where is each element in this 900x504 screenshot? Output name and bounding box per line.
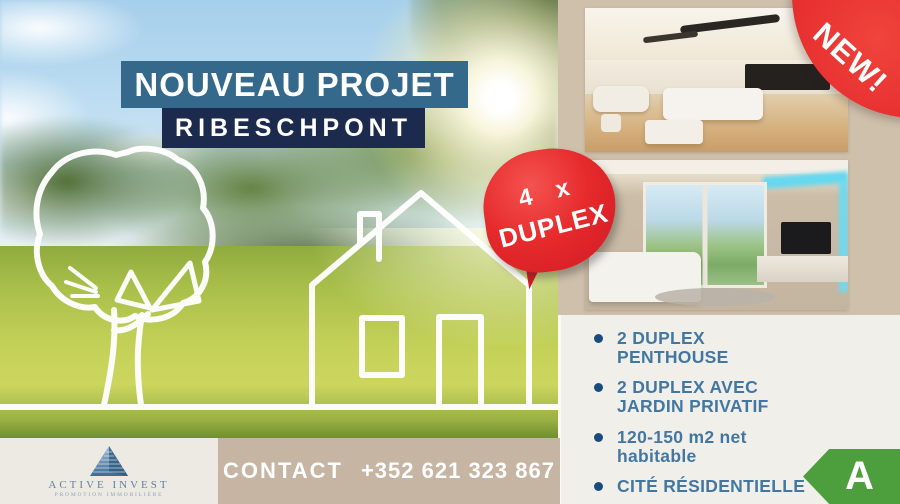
house-window-drawing	[362, 318, 402, 375]
pyramid-logo-icon	[85, 445, 133, 477]
window-mullion	[703, 185, 708, 285]
tv-cabinet	[757, 256, 848, 282]
bullet-dot	[594, 334, 603, 343]
contact-bar: CONTACT +352 621 323 867	[218, 438, 560, 504]
feature-line: JARDIN PRIVATIF	[617, 396, 769, 416]
company-name: ACTIVE INVEST	[48, 479, 169, 491]
company-logo-area: ACTIVE INVEST PROMOTION IMMOBILIÈRE	[0, 438, 218, 504]
feature-line: CITÉ RÉSIDENTIELLE	[617, 476, 805, 496]
bullet-dot	[594, 383, 603, 392]
feature-item: 2 DUPLEX PENTHOUSE	[617, 329, 894, 366]
contact-phone-number: +352 621 323 867	[361, 458, 555, 484]
tree-canopy-drawing	[36, 149, 212, 321]
tree-frond-drawing	[66, 268, 98, 296]
bullet-dot	[594, 482, 603, 491]
field-photo: NOUVEAU PROJET RIBESCHPONT	[0, 0, 558, 438]
dining-table	[593, 86, 649, 112]
house-window-drawing	[439, 317, 481, 407]
feature-line: 120-150 m2 net	[617, 427, 747, 447]
rug	[655, 288, 775, 306]
feature-line: 2 DUPLEX	[617, 328, 705, 348]
feature-item: 2 DUPLEX AVEC JARDIN PRIVATIF	[617, 378, 894, 415]
tree-leaf-drawing	[117, 263, 199, 310]
feature-line: PENTHOUSE	[617, 347, 729, 367]
poster-subtitle: RIBESCHPONT	[162, 108, 425, 148]
energy-class-letter: A	[829, 454, 874, 499]
ceiling	[585, 160, 848, 174]
tree-trunk-drawing	[104, 310, 148, 405]
feature-line: habitable	[617, 446, 697, 466]
company-tagline: PROMOTION IMMOBILIÈRE	[55, 492, 164, 498]
duplex-sticker-badge: 4 x DUPLEX	[484, 149, 624, 297]
sticker-bubble: 4 x DUPLEX	[476, 140, 624, 279]
ceiling-spotlight-strip	[643, 31, 698, 44]
bullet-dot	[594, 433, 603, 442]
dining-chair	[601, 114, 621, 132]
ottoman	[645, 120, 703, 144]
tv-screen	[781, 222, 831, 254]
feature-line: 2 DUPLEX AVEC	[617, 377, 758, 397]
sticker-text: 4 x DUPLEX	[488, 166, 611, 254]
contact-label: CONTACT	[223, 458, 343, 484]
poster-title: NOUVEAU PROJET	[121, 61, 468, 108]
real-estate-poster: NOUVEAU PROJET RIBESCHPONT	[0, 0, 900, 504]
white-sofa	[663, 88, 763, 120]
interior-photo-lounge	[585, 160, 848, 310]
